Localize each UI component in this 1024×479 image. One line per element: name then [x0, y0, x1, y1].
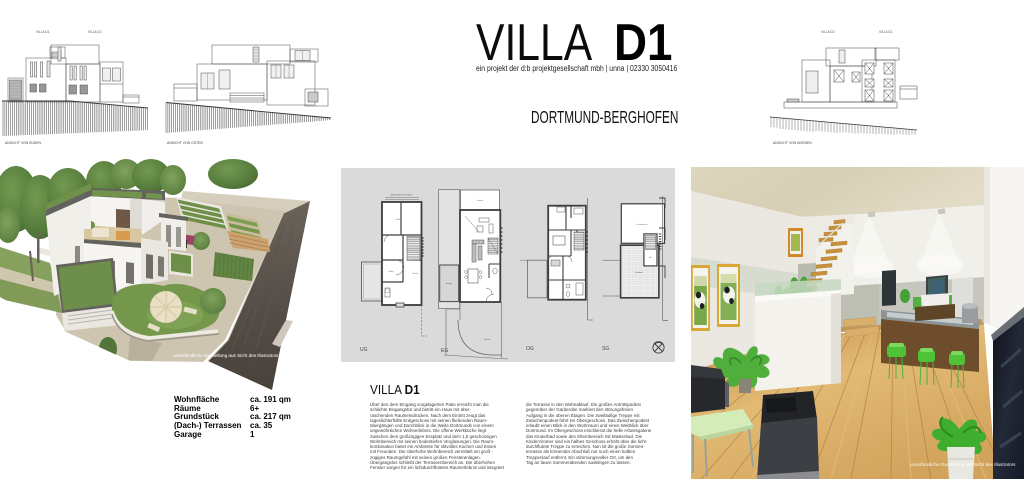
svg-text:VILLA D1: VILLA D1 [36, 30, 50, 34]
svg-text:Gründach: Gründach [635, 272, 643, 274]
svg-text:ANSICHT VON OSTEN: ANSICHT VON OSTEN [167, 141, 203, 145]
svg-text:VILLA D1: VILLA D1 [879, 30, 893, 34]
svg-text:VILLA D2: VILLA D2 [88, 30, 102, 34]
svg-text:VILLA D2: VILLA D2 [821, 30, 835, 34]
svg-text:unverbindliche Darstellung aus: unverbindliche Darstellung aus Sicht des… [910, 462, 1016, 467]
svg-text:Einfahrt: Einfahrt [484, 338, 491, 341]
svg-text:Keller: Keller [396, 219, 401, 221]
svg-text:ANSICHT VON SÜDEN: ANSICHT VON SÜDEN [5, 141, 41, 145]
svg-text:ANSICHT VON NORDEN: ANSICHT VON NORDEN [773, 141, 812, 145]
svg-text:Garage: Garage [446, 283, 452, 285]
svg-text:Terrasse: Terrasse [477, 200, 484, 202]
svg-text:Dachterrasse: Dachterrasse [637, 223, 648, 226]
svg-text:unverbindliche Darstellung aus: unverbindliche Darstellung aus Sicht des… [173, 353, 279, 358]
svg-text:Technik: Technik [412, 273, 418, 275]
svg-text:GARTEN MAUER UND ZAUN: GARTEN MAUER UND ZAUN [390, 194, 412, 197]
svg-text:SG: SG [602, 346, 609, 352]
svg-text:EG: EG [441, 348, 448, 354]
svg-text:Hobby: Hobby [388, 271, 393, 273]
svg-text:OG: OG [526, 346, 534, 352]
svg-text:Gal.: Gal. [649, 257, 653, 259]
svg-text:UG: UG [360, 347, 368, 353]
